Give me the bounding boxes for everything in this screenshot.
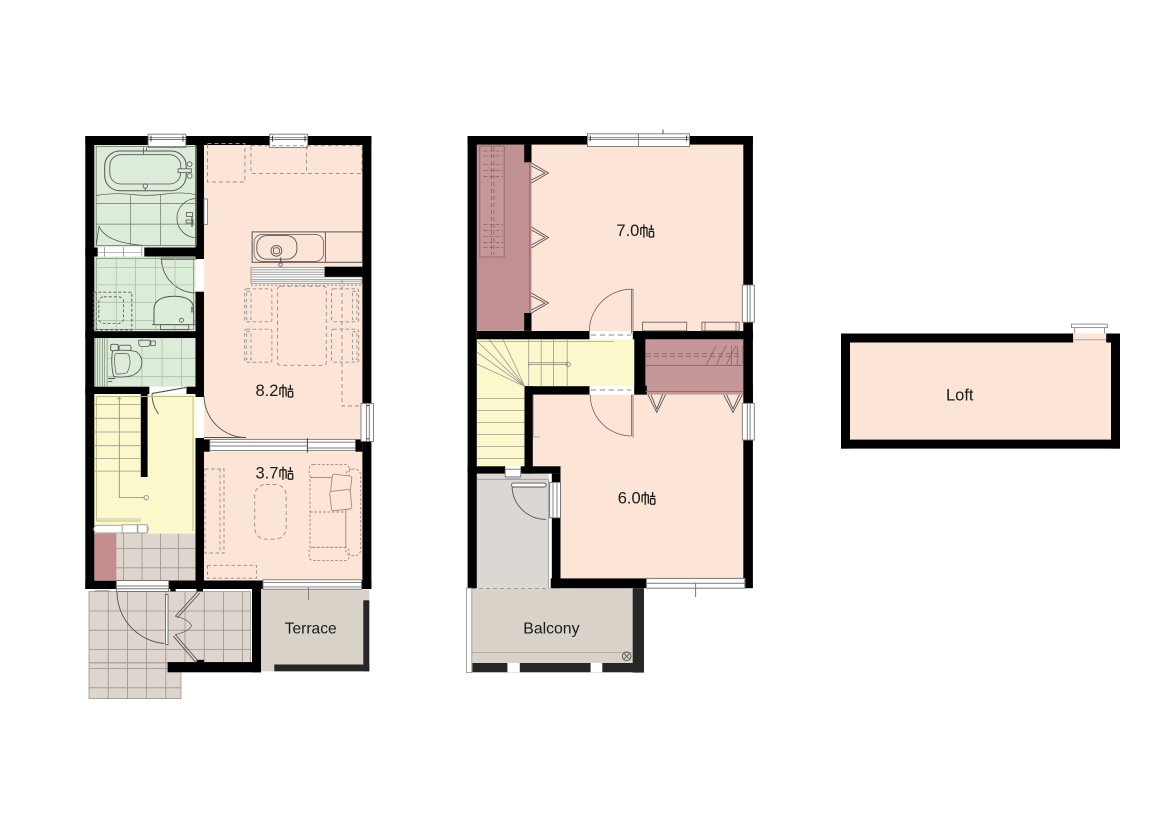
svg-text:3.7: 3.7 — [256, 464, 279, 482]
svg-text:7.0: 7.0 — [616, 222, 639, 240]
svg-text:8.2: 8.2 — [256, 382, 279, 400]
svg-text:Balcony: Balcony — [523, 620, 579, 637]
svg-text:6.0: 6.0 — [618, 489, 641, 507]
svg-text:Loft: Loft — [946, 386, 974, 404]
svg-text:Terrace: Terrace — [285, 620, 337, 637]
